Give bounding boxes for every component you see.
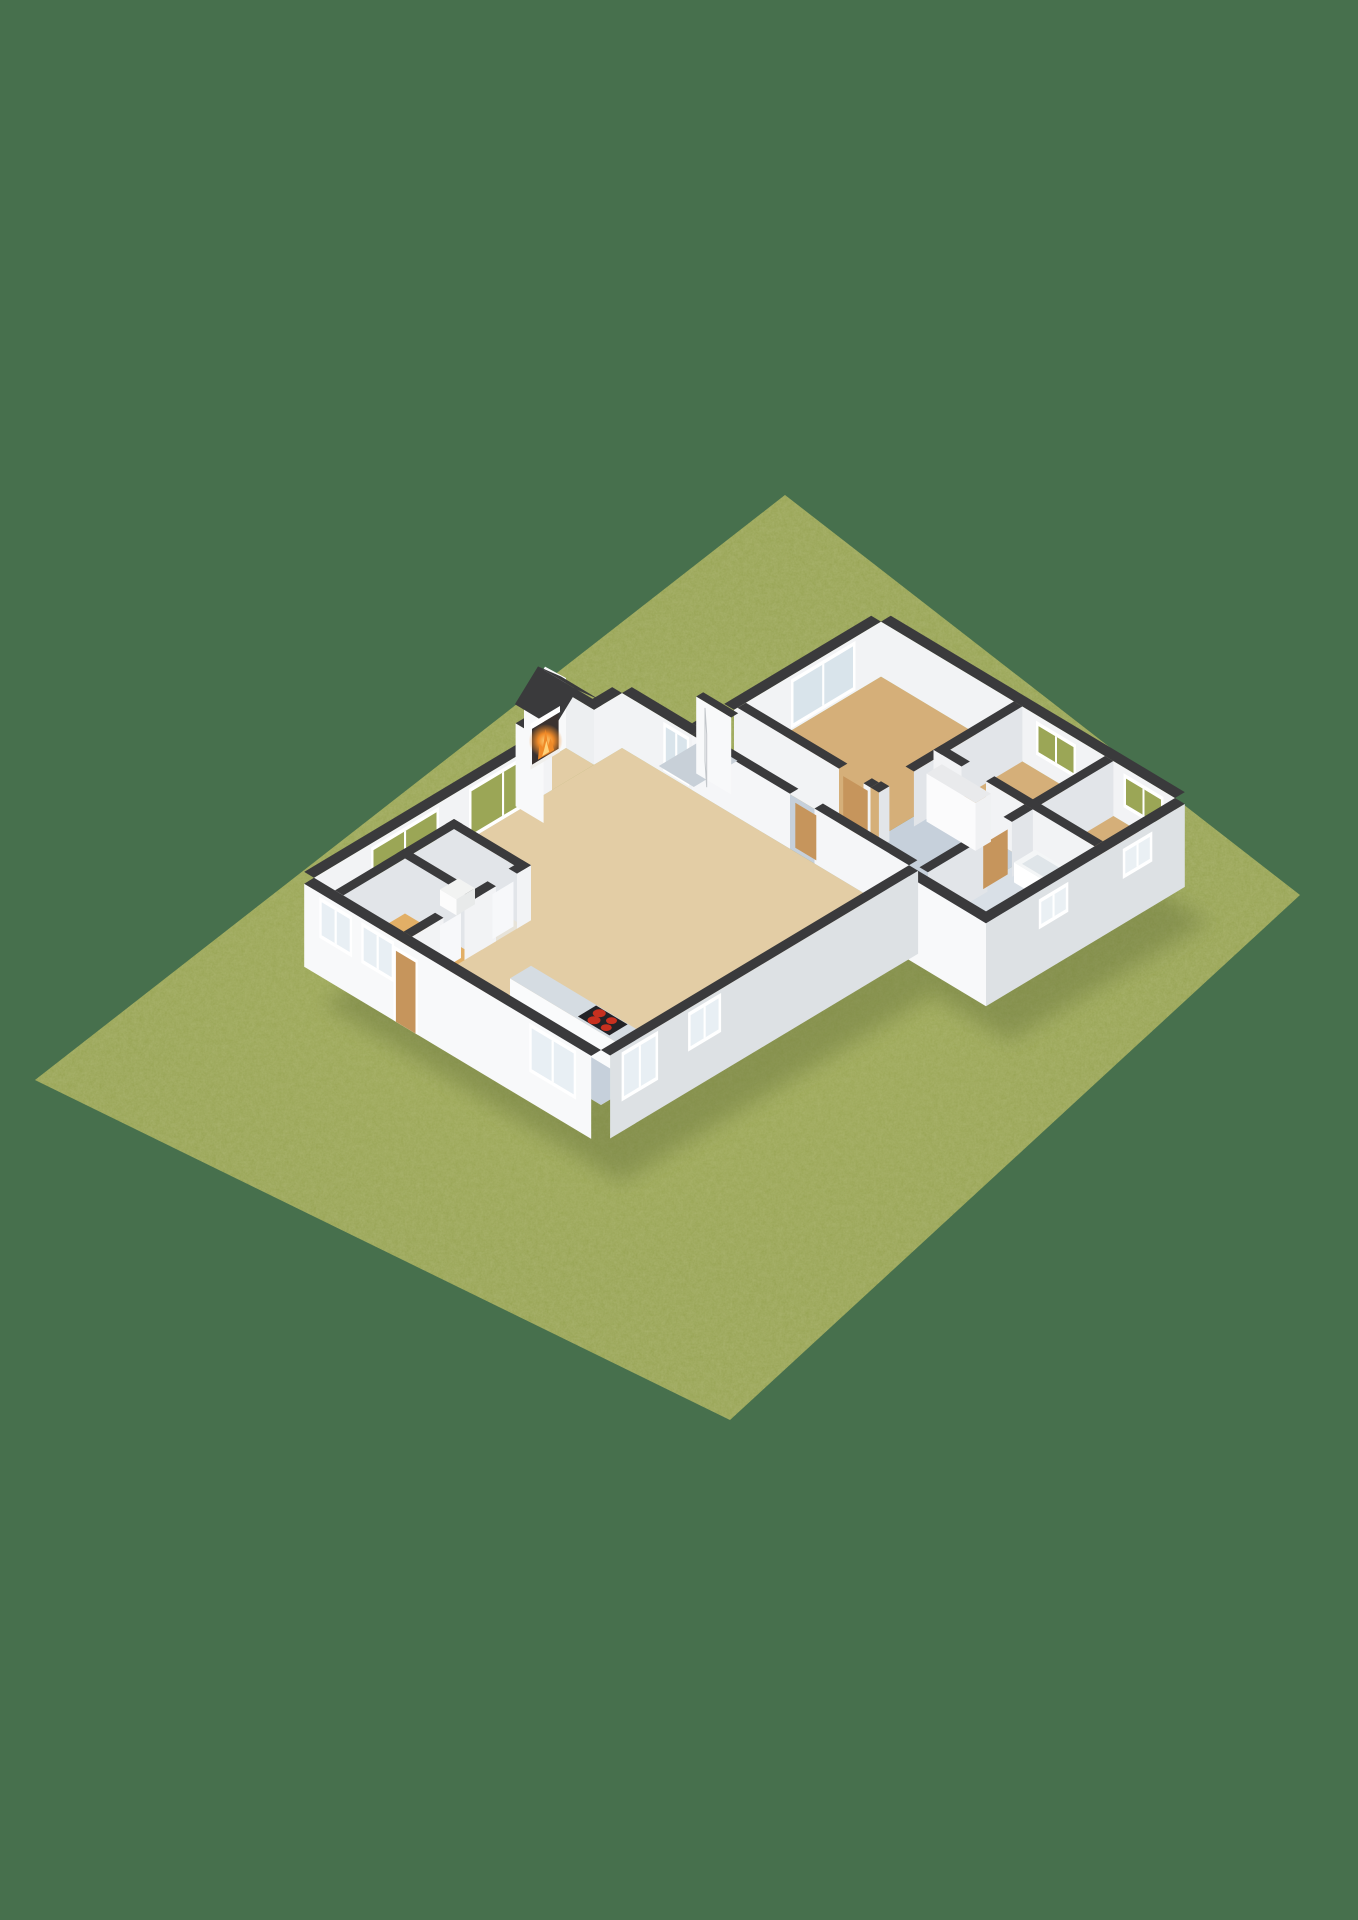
cooktop-burner: [601, 1024, 612, 1031]
window-mullion: [704, 1006, 706, 1038]
cooktop-burner: [593, 1009, 606, 1017]
door-utility-ext: [396, 951, 416, 1034]
window-mullion: [377, 935, 379, 969]
window-mullion: [639, 1045, 641, 1087]
window-mullion: [1137, 844, 1139, 867]
window-mullion: [335, 910, 337, 944]
wall-island-e: [517, 865, 531, 928]
cooktop-burner: [606, 1017, 617, 1024]
closet: [976, 794, 991, 851]
window-mullion: [1053, 894, 1055, 917]
cooktop-burner: [588, 1016, 601, 1024]
window-mullion: [1143, 789, 1145, 816]
window-mullion: [502, 772, 504, 816]
scene-canvas: [0, 0, 1358, 1920]
floorplan-3d-render: [0, 0, 1358, 1920]
window-mullion: [822, 664, 824, 706]
window-mullion: [552, 1040, 554, 1082]
window-mullion: [1055, 736, 1057, 763]
